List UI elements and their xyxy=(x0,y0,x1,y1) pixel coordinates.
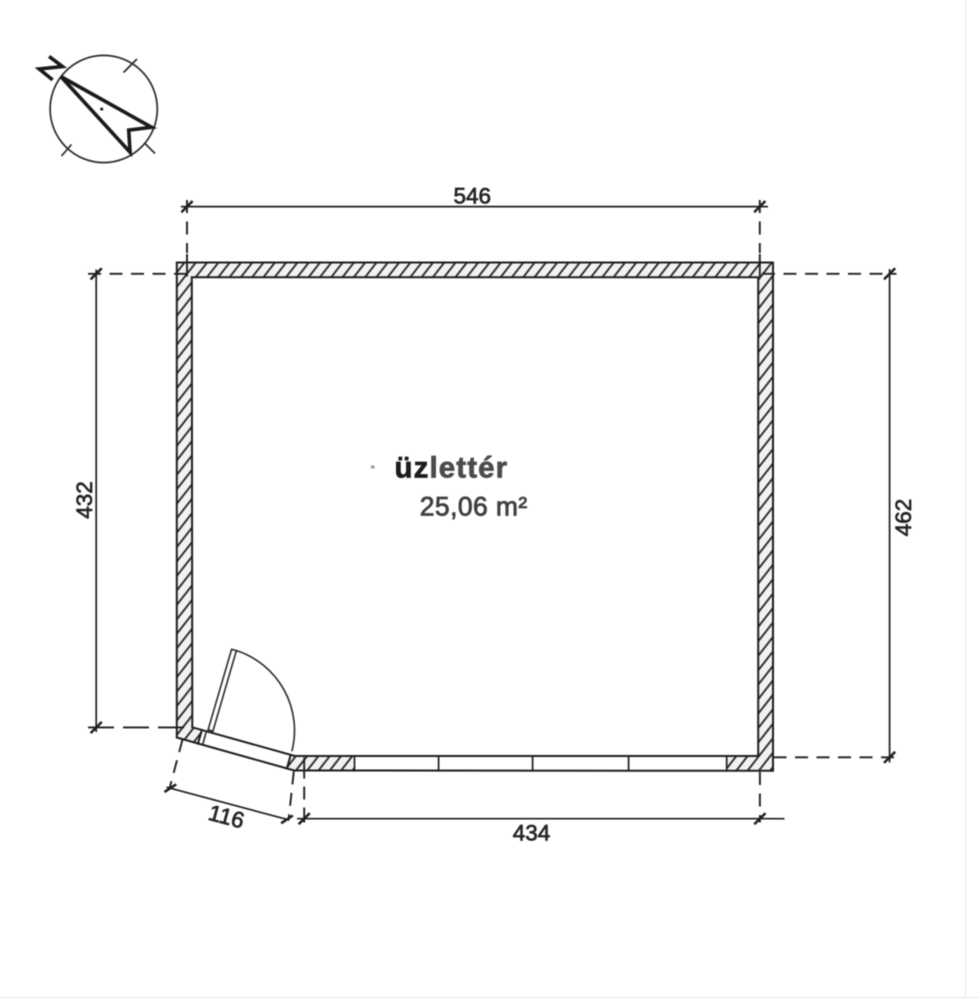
svg-text:üzlettér: üzlettér xyxy=(395,452,509,485)
svg-text:432: 432 xyxy=(72,481,97,519)
svg-text:25,06 m²: 25,06 m² xyxy=(420,492,528,522)
svg-text:434: 434 xyxy=(513,821,551,846)
svg-text:462: 462 xyxy=(891,499,916,537)
svg-text:546: 546 xyxy=(454,184,492,209)
svg-text:116: 116 xyxy=(206,800,247,833)
